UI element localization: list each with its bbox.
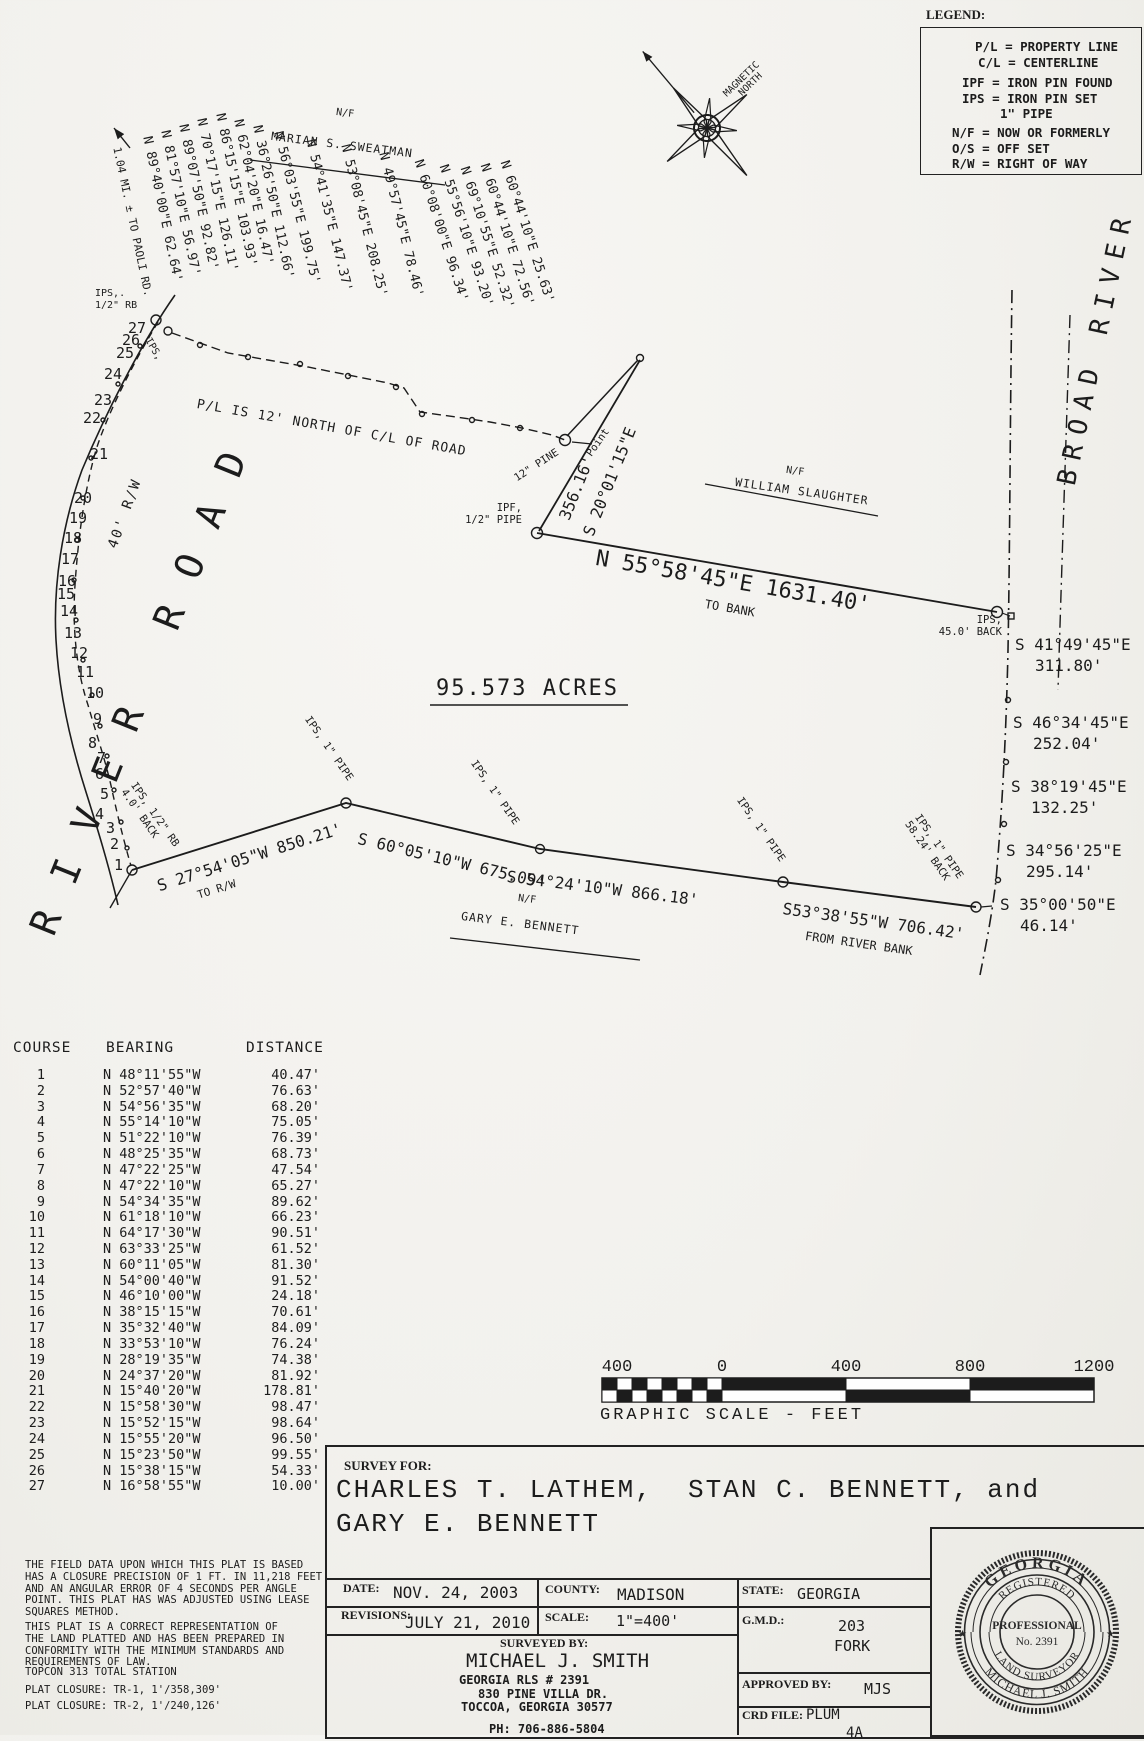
title-block-divider	[325, 1578, 930, 1580]
course-table-cell-course: 18	[5, 1337, 45, 1353]
scale-value: 1"=400'	[616, 1613, 679, 1630]
client-names-line2: GARY E. BENNETT	[336, 1510, 600, 1540]
river-course-bearing: S 41°49'45"E	[1015, 636, 1131, 654]
course-table-cell-distance: 89.62'	[250, 1195, 320, 1211]
title-block-divider	[737, 1578, 739, 1735]
course-table-cell-distance: 76.24'	[250, 1337, 320, 1353]
course-table-cell-bearing: N 15°40'20"W	[103, 1384, 201, 1400]
scale-bar-tick-label: 800	[940, 1358, 1000, 1378]
course-table-cell-bearing: N 47°22'25"W	[103, 1163, 201, 1179]
course-table-cell-distance: 61.52'	[250, 1242, 320, 1258]
gmd-value2: FORK	[834, 1638, 870, 1655]
surveyor-license: GEORGIA RLS # 2391	[459, 1674, 589, 1688]
adjoiner-nf-label: N/F	[785, 465, 804, 479]
course-table-cell-bearing: N 61°18'10"W	[103, 1210, 201, 1226]
county-label: COUNTY:	[545, 1583, 600, 1597]
course-table-cell-course: 10	[5, 1210, 45, 1226]
state-value: GEORGIA	[797, 1586, 860, 1603]
course-table-cell-course: 4	[5, 1115, 45, 1131]
course-table-cell-distance: 70.61'	[250, 1305, 320, 1321]
legend-item: IPF = IRON PIN FOUND	[962, 76, 1113, 90]
course-table-cell-distance: 81.30'	[250, 1258, 320, 1274]
note-plat-closure-tr2: PLAT CLOSURE: TR-2, 1'/240,126'	[25, 1700, 221, 1712]
course-table-header-distance: DISTANCE	[246, 1040, 324, 1057]
course-table-cell-distance: 66.23'	[250, 1210, 320, 1226]
note-total-station: TOPCON 313 TOTAL STATION	[25, 1666, 177, 1678]
course-table-cell-bearing: N 15°52'15"W	[103, 1416, 201, 1432]
road-course-number: 17	[61, 551, 79, 568]
course-table-cell-course: 1	[5, 1068, 45, 1084]
course-table-cell-course: 8	[5, 1179, 45, 1195]
approved-by-value: MJS	[864, 1681, 891, 1698]
scale-label: SCALE:	[545, 1611, 589, 1625]
scale-bar-tick-label: 0	[692, 1358, 752, 1378]
course-table-cell-course: 2	[5, 1084, 45, 1100]
adjoiner-nf-label: N/F	[517, 893, 536, 907]
river-course-bearing: S 34°56'25"E	[1006, 842, 1122, 860]
course-table-cell-bearing: N 47°22'10"W	[103, 1179, 201, 1195]
revisions-label: REVISIONS:	[341, 1609, 411, 1623]
course-table-cell-bearing: N 52°57'40"W	[103, 1084, 201, 1100]
ips-rebar-top-label: IPS,. 1/2" RB	[95, 288, 137, 311]
legend-item: P/L = PROPERTY LINE	[975, 40, 1118, 54]
course-table-header-bearing: BEARING	[106, 1040, 174, 1057]
course-table-cell-bearing: N 54°34'35"W	[103, 1195, 201, 1211]
road-course-number: 19	[69, 510, 87, 527]
river-course-distance: 252.04'	[1033, 735, 1100, 753]
crd-file-value: PLUM	[806, 1707, 840, 1723]
course-table-cell-course: 16	[5, 1305, 45, 1321]
course-table-cell-bearing: N 60°11'05"W	[103, 1258, 201, 1274]
course-table-cell-bearing: N 15°58'30"W	[103, 1400, 201, 1416]
title-block-divider	[737, 1672, 930, 1674]
course-table-cell-course: 19	[5, 1353, 45, 1369]
road-course-number: 12	[70, 645, 88, 662]
course-table-cell-distance: 98.47'	[250, 1400, 320, 1416]
legend-item: R/W = RIGHT OF WAY	[952, 157, 1087, 171]
course-table-cell-distance: 178.81'	[250, 1384, 320, 1400]
course-table-cell-bearing: N 15°55'20"W	[103, 1432, 201, 1448]
road-course-number: 18	[64, 530, 82, 547]
course-table-cell-course: 12	[5, 1242, 45, 1258]
survey-for-label: SURVEY FOR:	[344, 1459, 432, 1474]
road-course-number: 21	[90, 446, 108, 463]
course-table-cell-course: 21	[5, 1384, 45, 1400]
course-table-cell-distance: 54.33'	[250, 1464, 320, 1480]
river-course-distance: 295.14'	[1026, 863, 1093, 881]
course-table-cell-bearing: N 63°33'25"W	[103, 1242, 201, 1258]
river-course-distance: 311.80'	[1035, 657, 1102, 675]
legend-item: N/F = NOW OR FORMERLY	[952, 126, 1110, 140]
course-table-cell-bearing: N 38°15'15"W	[103, 1305, 201, 1321]
county-value: MADISON	[617, 1586, 684, 1604]
course-table-cell-bearing: N 16°58'55"W	[103, 1479, 201, 1495]
course-table-cell-course: 20	[5, 1369, 45, 1385]
course-table-cell-course: 7	[5, 1163, 45, 1179]
river-course-distance: 132.25'	[1031, 799, 1098, 817]
course-table-cell-course: 3	[5, 1100, 45, 1116]
legend-item: 1" PIPE	[1000, 107, 1053, 121]
course-table-cell-bearing: N 28°19'35"W	[103, 1353, 201, 1369]
course-table-cell-course: 26	[5, 1464, 45, 1480]
course-table-cell-course: 6	[5, 1147, 45, 1163]
road-course-number: 7	[97, 750, 106, 767]
road-course-number: 13	[64, 625, 82, 642]
road-course-number: 14	[60, 603, 78, 620]
road-course-number: 27	[128, 320, 146, 337]
course-table-cell-course: 17	[5, 1321, 45, 1337]
course-table-cell-course: 11	[5, 1226, 45, 1242]
date-value: NOV. 24, 2003	[393, 1584, 518, 1602]
note-closure-precision: THE FIELD DATA UPON WHICH THIS PLAT IS B…	[25, 1560, 322, 1619]
road-course-number: 22	[83, 410, 101, 427]
course-table-cell-bearing: N 55°14'10"W	[103, 1115, 201, 1131]
surveyed-by-label: SURVEYED BY:	[500, 1637, 588, 1651]
course-table-cell-course: 24	[5, 1432, 45, 1448]
road-course-number: 1	[114, 857, 123, 874]
course-table-cell-distance: 65.27'	[250, 1179, 320, 1195]
surveyor-name: MICHAEL J. SMITH	[466, 1651, 649, 1673]
river-course-bearing: S 38°19'45"E	[1011, 778, 1127, 796]
course-table-cell-distance: 47.54'	[250, 1163, 320, 1179]
client-names-line1: CHARLES T. LATHEM, STAN C. BENNETT, and	[336, 1476, 1040, 1506]
road-course-number: 3	[106, 820, 115, 837]
course-table-cell-bearing: N 48°11'55"W	[103, 1068, 201, 1084]
adjoiner-nf-label: N/F	[335, 107, 354, 121]
course-table-cell-bearing: N 24°37'20"W	[103, 1369, 201, 1385]
title-block-divider	[325, 1606, 930, 1608]
title-block-divider	[537, 1578, 539, 1636]
road-course-number: 9	[93, 711, 102, 728]
road-course-number: 11	[76, 664, 94, 681]
course-table-cell-distance: 75.05'	[250, 1115, 320, 1131]
legend-item: C/L = CENTERLINE	[978, 56, 1098, 70]
road-course-number: 16	[58, 573, 76, 590]
state-label: STATE:	[742, 1584, 784, 1598]
ipf-pipe-label: IPF, 1/2" PIPE	[430, 502, 522, 526]
legend-item: O/S = OFF SET	[952, 142, 1050, 156]
gmd-label: G.M.D.:	[742, 1614, 784, 1628]
river-course-distance: 46.14'	[1020, 917, 1078, 935]
road-course-number: 8	[88, 735, 97, 752]
survey-plat-page: GEORGIA MICHAEL J. SMITH REGISTERED LAND…	[0, 0, 1144, 1735]
scale-bar-tick-label: 400	[816, 1358, 876, 1378]
course-table-cell-course: 25	[5, 1448, 45, 1464]
course-table-cell-bearing: N 35°32'40"W	[103, 1321, 201, 1337]
road-course-number: 5	[100, 786, 109, 803]
course-table-cell-distance: 10.00'	[250, 1479, 320, 1495]
course-table-cell-bearing: N 64°17'30"W	[103, 1226, 201, 1242]
crd-file-value2: 4A	[846, 1725, 863, 1741]
course-table-cell-course: 9	[5, 1195, 45, 1211]
compass-icon	[603, 18, 787, 209]
course-table-cell-distance: 84.09'	[250, 1321, 320, 1337]
revisions-value: JULY 21, 2010	[405, 1614, 530, 1632]
scale-bar-tick-label: 1200	[1064, 1358, 1124, 1378]
river-course-bearing: S 46°34'45"E	[1013, 714, 1129, 732]
river-course-bearing: S 35°00'50"E	[1000, 896, 1116, 914]
course-table-cell-distance: 98.64'	[250, 1416, 320, 1432]
course-table-cell-bearing: N 15°38'15"W	[103, 1464, 201, 1480]
course-table-cell-distance: 96.50'	[250, 1432, 320, 1448]
note-correct-representation: THIS PLAT IS A CORRECT REPRESENTATION OF…	[25, 1622, 284, 1669]
course-table-cell-distance: 76.39'	[250, 1131, 320, 1147]
course-table-cell-course: 14	[5, 1274, 45, 1290]
approved-by-label: APPROVED BY:	[742, 1678, 831, 1692]
course-table-cell-distance: 74.38'	[250, 1353, 320, 1369]
ips-45-back-label: IPS, 45.0' BACK	[900, 614, 1002, 638]
scale-bar	[602, 1378, 1094, 1402]
surveyor-city: TOCCOA, GEORGIA 30577	[461, 1701, 613, 1715]
course-table-cell-bearing: N 15°23'50"W	[103, 1448, 201, 1464]
course-table-cell-course: 5	[5, 1131, 45, 1147]
road-course-number: 23	[94, 392, 112, 409]
course-table-cell-course: 22	[5, 1400, 45, 1416]
bank-line	[537, 533, 1010, 616]
acreage-label: 95.573 ACRES	[436, 676, 619, 701]
course-table-cell-bearing: N 51°22'10"W	[103, 1131, 201, 1147]
graphic-scale-caption: GRAPHIC SCALE - FEET	[600, 1406, 864, 1426]
course-table-cell-bearing: N 46°10'00"W	[103, 1289, 201, 1305]
legend-title: LEGEND:	[926, 8, 985, 23]
course-table-cell-distance: 90.51'	[250, 1226, 320, 1242]
course-table-cell-distance: 24.18'	[250, 1289, 320, 1305]
road-course-number: 4	[95, 806, 104, 823]
course-table-cell-bearing: N 54°56'35"W	[103, 1100, 201, 1116]
road-course-number: 24	[104, 366, 122, 383]
gmd-value: 203	[838, 1618, 865, 1635]
course-table-header-course: COURSE	[13, 1040, 71, 1057]
course-table-cell-distance: 68.20'	[250, 1100, 320, 1116]
course-table-cell-bearing: N 48°25'35"W	[103, 1147, 201, 1163]
crd-file-label: CRD FILE:	[742, 1709, 803, 1723]
course-table-cell-distance: 81.92'	[250, 1369, 320, 1385]
date-label: DATE:	[343, 1582, 379, 1596]
course-table-cell-distance: 99.55'	[250, 1448, 320, 1464]
note-plat-closure-tr1: PLAT CLOSURE: TR-1, 1'/358,309'	[25, 1684, 221, 1696]
legend-item: IPS = IRON PIN SET	[962, 92, 1097, 106]
course-table-cell-course: 13	[5, 1258, 45, 1274]
course-table-cell-course: 27	[5, 1479, 45, 1495]
course-table-cell-course: 23	[5, 1416, 45, 1432]
road-course-number: 20	[74, 490, 92, 507]
seal-box-border	[930, 1527, 1144, 1737]
road-course-number: 2	[110, 836, 119, 853]
scale-bar-tick-label: 400	[587, 1358, 647, 1378]
course-table-cell-bearing: N 33°53'10"W	[103, 1337, 201, 1353]
course-table-cell-distance: 40.47'	[250, 1068, 320, 1084]
road-course-number: 10	[86, 685, 104, 702]
course-table-cell-course: 15	[5, 1289, 45, 1305]
course-table-cell-distance: 76.63'	[250, 1084, 320, 1100]
course-table-cell-distance: 68.73'	[250, 1147, 320, 1163]
course-table-cell-distance: 91.52'	[250, 1274, 320, 1290]
course-table-cell-bearing: N 54°00'40"W	[103, 1274, 201, 1290]
road-course-number: 6	[95, 766, 104, 783]
